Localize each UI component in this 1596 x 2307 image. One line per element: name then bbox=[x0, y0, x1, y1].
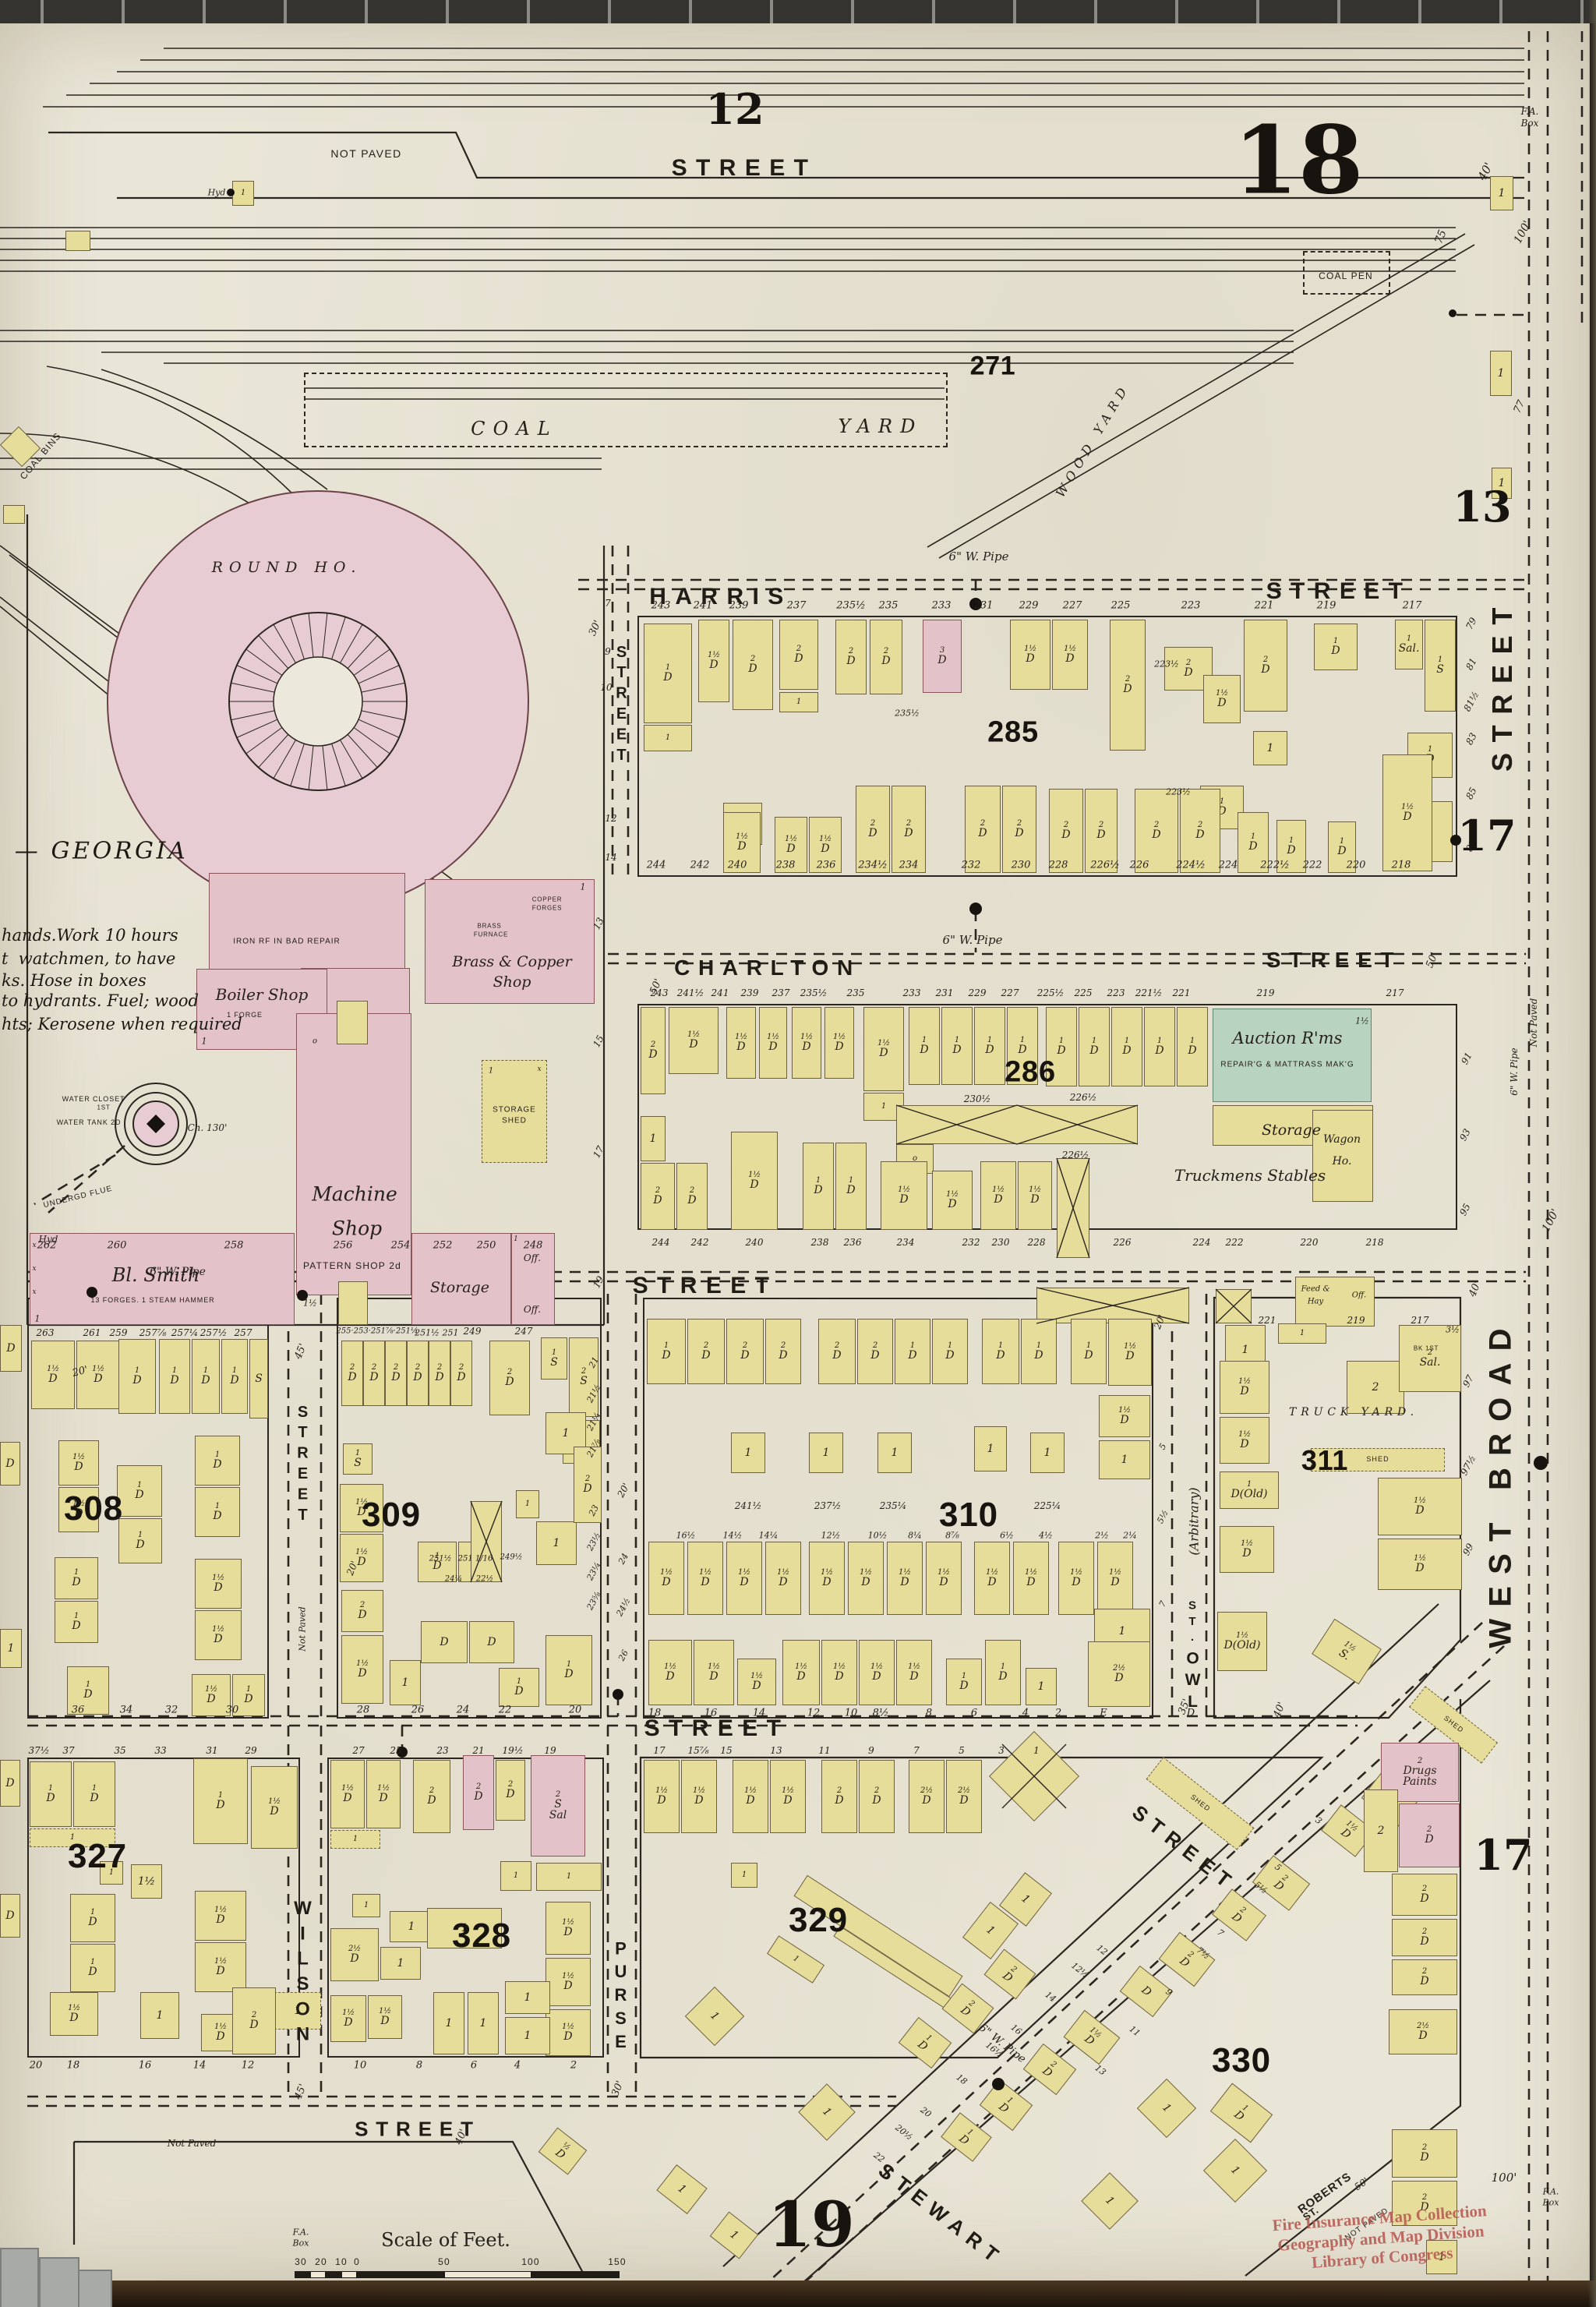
address-number: 7 bbox=[605, 598, 611, 609]
map-label: F.A. bbox=[293, 2228, 309, 2238]
map-label: Storage bbox=[430, 1279, 489, 1296]
map-label: Off. bbox=[524, 1252, 541, 1263]
street-name-label: CHARLTON bbox=[674, 956, 861, 980]
sheet-number: 18 bbox=[1234, 106, 1364, 216]
map-label: NOT PAVED bbox=[330, 147, 401, 160]
map-label: Feed & bbox=[1301, 1285, 1330, 1294]
address-number: 12½ bbox=[821, 1531, 841, 1541]
street-name-label: STREET bbox=[672, 155, 817, 182]
block-number: 311 bbox=[1301, 1444, 1348, 1477]
book-edge-bottom bbox=[0, 2281, 1596, 2307]
address-number: 28 bbox=[357, 1705, 370, 1716]
address-number: 237½ bbox=[814, 1500, 842, 1511]
address-number: 16½ bbox=[676, 1531, 696, 1541]
address-number: 30 bbox=[226, 1705, 239, 1716]
address-number: 6½ bbox=[1000, 1531, 1014, 1541]
address-number: E bbox=[1100, 1708, 1107, 1719]
address-number: 235 bbox=[847, 987, 865, 998]
address-number: 224½ bbox=[1176, 860, 1205, 871]
address-number: 31 bbox=[206, 1745, 217, 1756]
address-number: 12 bbox=[242, 2060, 255, 2072]
map-label: hands.Work 10 hours bbox=[2, 926, 178, 945]
address-number: 217 bbox=[1411, 1315, 1429, 1326]
address-number: 262 bbox=[37, 1240, 57, 1252]
address-number: x bbox=[32, 1265, 36, 1273]
address-number: 15 bbox=[720, 1745, 732, 1756]
map-label: BK 1ST bbox=[1414, 1345, 1439, 1352]
address-number: 8⅞ bbox=[945, 1531, 959, 1541]
address-number: 251½ bbox=[415, 1328, 440, 1338]
address-number: 35 bbox=[114, 1745, 125, 1756]
address-number: 1 bbox=[35, 1314, 41, 1324]
address-number: 1 bbox=[514, 1235, 518, 1243]
map-label: 150 bbox=[608, 2256, 627, 2267]
address-number: 241½ bbox=[677, 987, 704, 998]
block-number: 285 bbox=[987, 716, 1039, 750]
address-number: 33 bbox=[154, 1745, 166, 1756]
map-label: Off. bbox=[524, 1304, 541, 1315]
address-number: 1 bbox=[202, 1037, 207, 1047]
address-number: 233 bbox=[932, 600, 952, 612]
address-number: 220 bbox=[1347, 860, 1366, 871]
address-number: 237 bbox=[772, 987, 790, 998]
address-number: 14 bbox=[193, 2060, 207, 2072]
address-number: 219 bbox=[1257, 987, 1275, 998]
address-number: 257½ bbox=[200, 1327, 228, 1338]
address-number: 224 bbox=[1219, 860, 1238, 871]
map-label: hts; Kerosene when required bbox=[2, 1015, 242, 1033]
address-number: 10½ bbox=[868, 1531, 888, 1541]
block-number: 330 bbox=[1212, 2041, 1271, 2080]
map-label: COPPER bbox=[532, 896, 563, 903]
map-label: Box bbox=[293, 2238, 309, 2249]
address-number: 240 bbox=[746, 1237, 764, 1248]
scale-bar-segment bbox=[341, 2271, 357, 2278]
address-number: 229 bbox=[1019, 600, 1039, 612]
address-number: 252 bbox=[433, 1240, 453, 1252]
address-number: 230½ bbox=[964, 1093, 991, 1104]
water-pipe-valve-dot bbox=[227, 189, 235, 196]
address-number: 235½ bbox=[800, 987, 828, 998]
address-number: 251 1/16 bbox=[458, 1555, 493, 1563]
address-number: 6 bbox=[471, 2060, 477, 2072]
address-number: 1 bbox=[489, 1067, 493, 1076]
map-label: 6" W. Pipe bbox=[943, 933, 1003, 947]
map-label: STORAGE bbox=[493, 1106, 536, 1115]
block-number: 271 bbox=[970, 352, 1016, 382]
address-number: 232 bbox=[962, 1237, 980, 1248]
address-number: 239 bbox=[729, 600, 749, 612]
address-number: 29 bbox=[245, 1745, 256, 1756]
street-name-label: HARRIS bbox=[649, 584, 792, 610]
address-number: 2 bbox=[570, 2060, 577, 2072]
street-name-label: OWL bbox=[1183, 1650, 1202, 1715]
address-number: 257¼ bbox=[171, 1327, 199, 1338]
address-number: 228 bbox=[1049, 860, 1068, 871]
address-number: 221 bbox=[1173, 987, 1191, 998]
scale-bar-segment bbox=[531, 2271, 620, 2278]
street-name-label: STREET bbox=[633, 1273, 779, 1299]
address-number: 10 bbox=[600, 682, 612, 693]
address-number: 219 bbox=[1317, 600, 1336, 612]
address-number: 18 bbox=[67, 2060, 80, 2072]
address-number: 225 bbox=[1075, 987, 1093, 998]
street-name-label: STREET bbox=[294, 1404, 312, 1527]
address-number: 32 bbox=[165, 1705, 178, 1716]
address-number: 243 bbox=[651, 987, 669, 998]
map-label: Scale of Feet. bbox=[381, 2229, 510, 2251]
address-number: 225½ bbox=[1037, 987, 1065, 998]
address-number: 221½ bbox=[1135, 987, 1163, 998]
block-number: 327 bbox=[68, 1837, 127, 1876]
map-label: WATER CLOSET bbox=[62, 1095, 125, 1103]
map-label: 6" W. Pipe bbox=[1509, 1048, 1520, 1096]
address-number: 263 bbox=[37, 1327, 55, 1338]
map-label: 20 bbox=[315, 2256, 327, 2267]
map-label: 100' bbox=[1492, 2171, 1517, 2185]
map-label: 1 FORGE bbox=[227, 1011, 263, 1019]
map-label: Brass & Copper bbox=[452, 953, 572, 970]
address-number: 218 bbox=[1366, 1237, 1384, 1248]
address-number: 10 bbox=[845, 1708, 858, 1719]
address-number: 20 bbox=[569, 1705, 582, 1716]
address-number: 230 bbox=[992, 1237, 1010, 1248]
address-number: 237 bbox=[787, 600, 807, 612]
address-number: 14 bbox=[605, 852, 616, 863]
street-name-label: PURSE bbox=[610, 1938, 630, 2054]
address-number: 226½ bbox=[1070, 1092, 1097, 1103]
map-label: t watchmen, to have bbox=[2, 949, 175, 968]
address-number: 218 bbox=[1392, 860, 1411, 871]
address-number: 36 bbox=[72, 1705, 85, 1716]
address-number: 1 bbox=[1033, 1745, 1040, 1756]
address-number: 1 bbox=[581, 882, 586, 892]
map-label: Not Paved bbox=[1528, 998, 1539, 1048]
address-number: 257 bbox=[235, 1327, 252, 1338]
address-number: 217 bbox=[1403, 600, 1422, 612]
street-name-label: STREET bbox=[613, 644, 630, 767]
address-number: 223½ bbox=[1154, 659, 1179, 669]
map-label: Hay bbox=[1308, 1298, 1323, 1306]
address-number: 20 bbox=[30, 2060, 43, 2072]
address-number: 34 bbox=[120, 1705, 133, 1716]
address-number: 12 bbox=[807, 1708, 821, 1719]
address-number: 256 bbox=[334, 1240, 353, 1252]
scale-bar-segment bbox=[310, 2271, 326, 2278]
address-number: 6 bbox=[971, 1708, 977, 1719]
address-number: 223 bbox=[1181, 600, 1201, 612]
address-number: 244 bbox=[652, 1237, 670, 1248]
map-label: F.A. bbox=[1521, 106, 1539, 117]
street-name-label: ST. bbox=[1186, 1599, 1199, 1647]
map-label: Hyd bbox=[208, 188, 226, 198]
address-number: 228 bbox=[1028, 1237, 1046, 1248]
address-number: 235½ bbox=[895, 708, 920, 719]
address-number: 236 bbox=[844, 1237, 862, 1248]
address-number: 24¼ bbox=[445, 1575, 462, 1584]
sheet-number: 12 bbox=[705, 84, 764, 134]
address-number: 27 bbox=[352, 1745, 364, 1756]
map-label: Auction R'ms bbox=[1233, 1029, 1343, 1048]
address-number: 223 bbox=[1107, 987, 1125, 998]
map-label: to hydrants. Fuel; wood bbox=[2, 991, 199, 1010]
address-number: 248 bbox=[524, 1240, 543, 1252]
address-number: 24 bbox=[457, 1705, 470, 1716]
sheet-number: 17 bbox=[1474, 1830, 1532, 1880]
address-number: 243 bbox=[651, 600, 671, 612]
address-number: 235 bbox=[879, 600, 899, 612]
address-number: 4½ bbox=[1039, 1531, 1053, 1541]
address-number: 238 bbox=[811, 1237, 829, 1248]
map-label: 6" W. Pipe bbox=[150, 1266, 206, 1278]
block-number: 329 bbox=[789, 1901, 848, 1940]
address-number: 2½ bbox=[1095, 1531, 1109, 1541]
map-label: Not Paved bbox=[168, 2138, 217, 2149]
sheet-number: 19 bbox=[768, 2188, 854, 2261]
map-label: BRASS bbox=[477, 923, 501, 930]
map-label: SHED bbox=[502, 1117, 527, 1125]
street-name-label: STREET bbox=[1266, 578, 1412, 605]
address-number: 239 bbox=[741, 987, 759, 998]
address-number: 19 bbox=[544, 1745, 556, 1756]
address-number: 250 bbox=[477, 1240, 496, 1252]
map-label: WATER TANK 2D bbox=[57, 1118, 122, 1126]
map-label: (Arbitrary) bbox=[1187, 1487, 1202, 1555]
address-number: 260 bbox=[108, 1240, 127, 1252]
address-number: 230 bbox=[1012, 860, 1031, 871]
address-number: 13 bbox=[770, 1745, 782, 1756]
address-number: 236 bbox=[817, 860, 836, 871]
address-number: 14¼ bbox=[759, 1531, 779, 1541]
scale-bar-segment bbox=[444, 2271, 531, 2278]
address-number: 226 bbox=[1114, 1237, 1132, 1248]
address-number: 229 bbox=[969, 987, 987, 998]
address-number: 231 bbox=[936, 987, 954, 998]
address-number: 224 bbox=[1193, 1237, 1211, 1248]
address-number: 247 bbox=[515, 1326, 533, 1337]
street-name-label: STREET bbox=[1266, 948, 1402, 973]
address-number: 11 bbox=[818, 1745, 830, 1756]
address-number: 259 bbox=[110, 1327, 128, 1338]
sanborn-map-sheet: 11111D11½D2D2D12D2D3D1½D1½D2D2D2D1D1Sal.… bbox=[0, 0, 1596, 2307]
map-label: TRUCK YARD. bbox=[1289, 1406, 1418, 1418]
map-label: Storage bbox=[1262, 1122, 1321, 1139]
map-label: COAL bbox=[471, 418, 558, 440]
address-number: 238 bbox=[776, 860, 796, 871]
address-number: 26 bbox=[411, 1705, 425, 1716]
address-number: 225¼ bbox=[1034, 1500, 1061, 1511]
sheet-number: 17 bbox=[1457, 811, 1516, 860]
map-label: Shop bbox=[493, 973, 531, 991]
address-number: 241½ bbox=[735, 1500, 762, 1511]
map-label: PATTERN SHOP 2d bbox=[303, 1260, 401, 1271]
address-number: 257⅞ bbox=[139, 1327, 167, 1338]
map-label: 0 bbox=[354, 2256, 360, 2267]
address-number: x bbox=[32, 1288, 36, 1296]
address-number: 14½ bbox=[723, 1531, 743, 1541]
address-number: 235½ bbox=[836, 600, 865, 612]
address-number: 219 bbox=[1347, 1315, 1365, 1326]
map-label: Box bbox=[1543, 2198, 1559, 2208]
page-edge-shadow bbox=[1588, 0, 1596, 2307]
map-label: 6" W. Pipe bbox=[949, 549, 1009, 564]
background-floor-tile bbox=[39, 2257, 79, 2307]
map-label: COAL PEN bbox=[1319, 270, 1373, 281]
map-label: IRON RF IN BAD REPAIR bbox=[233, 938, 341, 946]
address-number: 244 bbox=[647, 860, 666, 871]
address-number: 232 bbox=[962, 860, 981, 871]
address-number: 233 bbox=[903, 987, 921, 998]
address-number: 227 bbox=[1001, 987, 1019, 998]
block-number: 310 bbox=[939, 1496, 998, 1535]
address-number: 241 bbox=[694, 600, 713, 612]
address-number: 217 bbox=[1386, 987, 1404, 998]
address-number: 16 bbox=[139, 2060, 152, 2072]
water-pipe-valve-dot bbox=[992, 2078, 1005, 2090]
address-number: 15⅞ bbox=[688, 1745, 709, 1756]
block-number: 308 bbox=[64, 1489, 123, 1528]
address-number: 19½ bbox=[503, 1745, 524, 1756]
scale-bar-segment bbox=[326, 2271, 341, 2278]
address-number: 220 bbox=[1301, 1237, 1319, 1248]
water-pipe-valve-dot bbox=[1534, 1456, 1548, 1470]
map-label: Machine bbox=[312, 1183, 397, 1206]
map-label: Box bbox=[1521, 118, 1539, 129]
map-label: 13 FORGES. 1 STEAM HAMMER bbox=[90, 1296, 214, 1304]
address-number: 242 bbox=[690, 860, 710, 871]
address-number: 261 bbox=[83, 1327, 101, 1338]
address-number: 223½ bbox=[1166, 787, 1191, 797]
background-floor-tile bbox=[78, 2270, 112, 2307]
address-number: 9 bbox=[605, 646, 611, 657]
address-number: 4 bbox=[1022, 1708, 1029, 1719]
street-name-label: WILSON bbox=[291, 1898, 313, 2049]
map-label: 1ST bbox=[97, 1104, 110, 1111]
map-label: 30 bbox=[295, 2256, 307, 2267]
address-number: 25 bbox=[390, 1745, 401, 1756]
address-number: 258 bbox=[224, 1240, 244, 1252]
address-number: 4 bbox=[514, 2060, 521, 2072]
address-number: 17 bbox=[653, 1745, 665, 1756]
address-number: 1½ bbox=[1355, 1016, 1369, 1026]
address-number: 226½ bbox=[1090, 860, 1119, 871]
map-label: 100 bbox=[521, 2256, 540, 2267]
address-number: 234 bbox=[899, 860, 919, 871]
address-number: 10 bbox=[354, 2060, 367, 2072]
map-label: Shop bbox=[332, 1217, 382, 1240]
address-number: 2 bbox=[1055, 1708, 1061, 1719]
address-number: 8 bbox=[416, 2060, 422, 2072]
map-label: FORGES bbox=[532, 905, 563, 912]
water-pipe-valve-dot bbox=[1449, 309, 1457, 317]
address-number: 1½ bbox=[303, 1298, 317, 1309]
address-number: x bbox=[32, 1242, 36, 1249]
address-number: 9 bbox=[868, 1745, 874, 1756]
address-number: 226 bbox=[1130, 860, 1149, 871]
address-number: 12 bbox=[605, 813, 616, 824]
address-number: 22 bbox=[499, 1705, 512, 1716]
block-number: 328 bbox=[452, 1917, 511, 1955]
map-label: FURNACE bbox=[474, 931, 508, 938]
scale-bar-segment bbox=[357, 2271, 444, 2278]
address-number: 221 bbox=[1259, 1315, 1276, 1326]
address-number: 22½ bbox=[476, 1575, 493, 1584]
sheet-number: 13 bbox=[1453, 482, 1511, 532]
block-number: 286 bbox=[1005, 1056, 1056, 1090]
address-number: 249 bbox=[464, 1326, 482, 1337]
address-number: 7 bbox=[913, 1745, 920, 1756]
address-number: 222 bbox=[1226, 1237, 1244, 1248]
address-number: 249½ bbox=[500, 1553, 523, 1562]
address-number: 5 bbox=[959, 1745, 965, 1756]
street-name-label: STREET bbox=[644, 1715, 790, 1742]
block-number: 309 bbox=[362, 1496, 421, 1535]
map-label: F.A. bbox=[1543, 2187, 1559, 2197]
background-floor-tile bbox=[0, 2248, 39, 2307]
address-number: 226½ bbox=[1062, 1150, 1089, 1161]
map-label: 10 bbox=[335, 2256, 348, 2267]
map-label: ROUND HO. bbox=[212, 559, 362, 576]
address-number: 242 bbox=[691, 1237, 709, 1248]
address-number: 8½ bbox=[873, 1708, 889, 1719]
water-pipe-valve-dot bbox=[613, 1689, 623, 1700]
address-number: 8 bbox=[926, 1708, 932, 1719]
address-number: 235¼ bbox=[880, 1500, 907, 1511]
address-number: 240 bbox=[728, 860, 747, 871]
address-number: 3 bbox=[998, 1745, 1005, 1756]
address-number: 3½ bbox=[1446, 1325, 1460, 1335]
address-number: x bbox=[537, 1065, 541, 1073]
map-label: 50 bbox=[438, 2256, 450, 2267]
address-number: 8¼ bbox=[908, 1531, 922, 1541]
map-label: Wagon bbox=[1323, 1133, 1361, 1146]
address-number: 251½ bbox=[429, 1555, 452, 1563]
scale-bar-segment bbox=[295, 2271, 310, 2278]
address-number: 37½ bbox=[29, 1745, 50, 1756]
map-label: Boiler Shop bbox=[216, 985, 309, 1004]
address-number: 234 bbox=[897, 1237, 915, 1248]
address-number: 23 bbox=[436, 1745, 448, 1756]
map-label: ks. Hose in boxes bbox=[2, 971, 147, 990]
address-number: 222 bbox=[1303, 860, 1322, 871]
map-label: — GEORGIA bbox=[15, 838, 188, 865]
address-number: 231 bbox=[974, 600, 994, 612]
address-number: 2¼ bbox=[1123, 1531, 1137, 1541]
address-number: 21 bbox=[472, 1745, 484, 1756]
address-number: 255·253·251⅞·251¼ bbox=[336, 1327, 418, 1336]
map-label: Not Paved bbox=[298, 1606, 308, 1651]
street-name-label: WEST BROAD bbox=[1484, 1316, 1519, 1648]
address-number: 222½ bbox=[1260, 860, 1289, 871]
symbol-layer bbox=[0, 0, 1596, 2307]
address-number: 37 bbox=[62, 1745, 74, 1756]
address-number: 241 bbox=[711, 987, 729, 998]
map-label: Off. bbox=[1352, 1291, 1366, 1300]
map-label: Ch. 130' bbox=[188, 1122, 228, 1133]
street-name-label: STREET bbox=[1486, 597, 1519, 772]
address-number: 251 bbox=[443, 1328, 459, 1338]
map-label: YARD bbox=[839, 415, 923, 437]
address-number: o bbox=[312, 1037, 317, 1046]
address-number: 254 bbox=[391, 1240, 411, 1252]
water-pipe-valve-dot bbox=[969, 903, 982, 915]
address-number: 227 bbox=[1063, 600, 1082, 612]
map-label: Ho. bbox=[1333, 1155, 1352, 1168]
map-label: Truckmens Stables bbox=[1174, 1166, 1326, 1185]
address-number: 221 bbox=[1255, 600, 1274, 612]
address-number: 234½ bbox=[858, 860, 887, 871]
map-label: REPAIR'G & MATTRASS MAK'G bbox=[1220, 1061, 1354, 1069]
